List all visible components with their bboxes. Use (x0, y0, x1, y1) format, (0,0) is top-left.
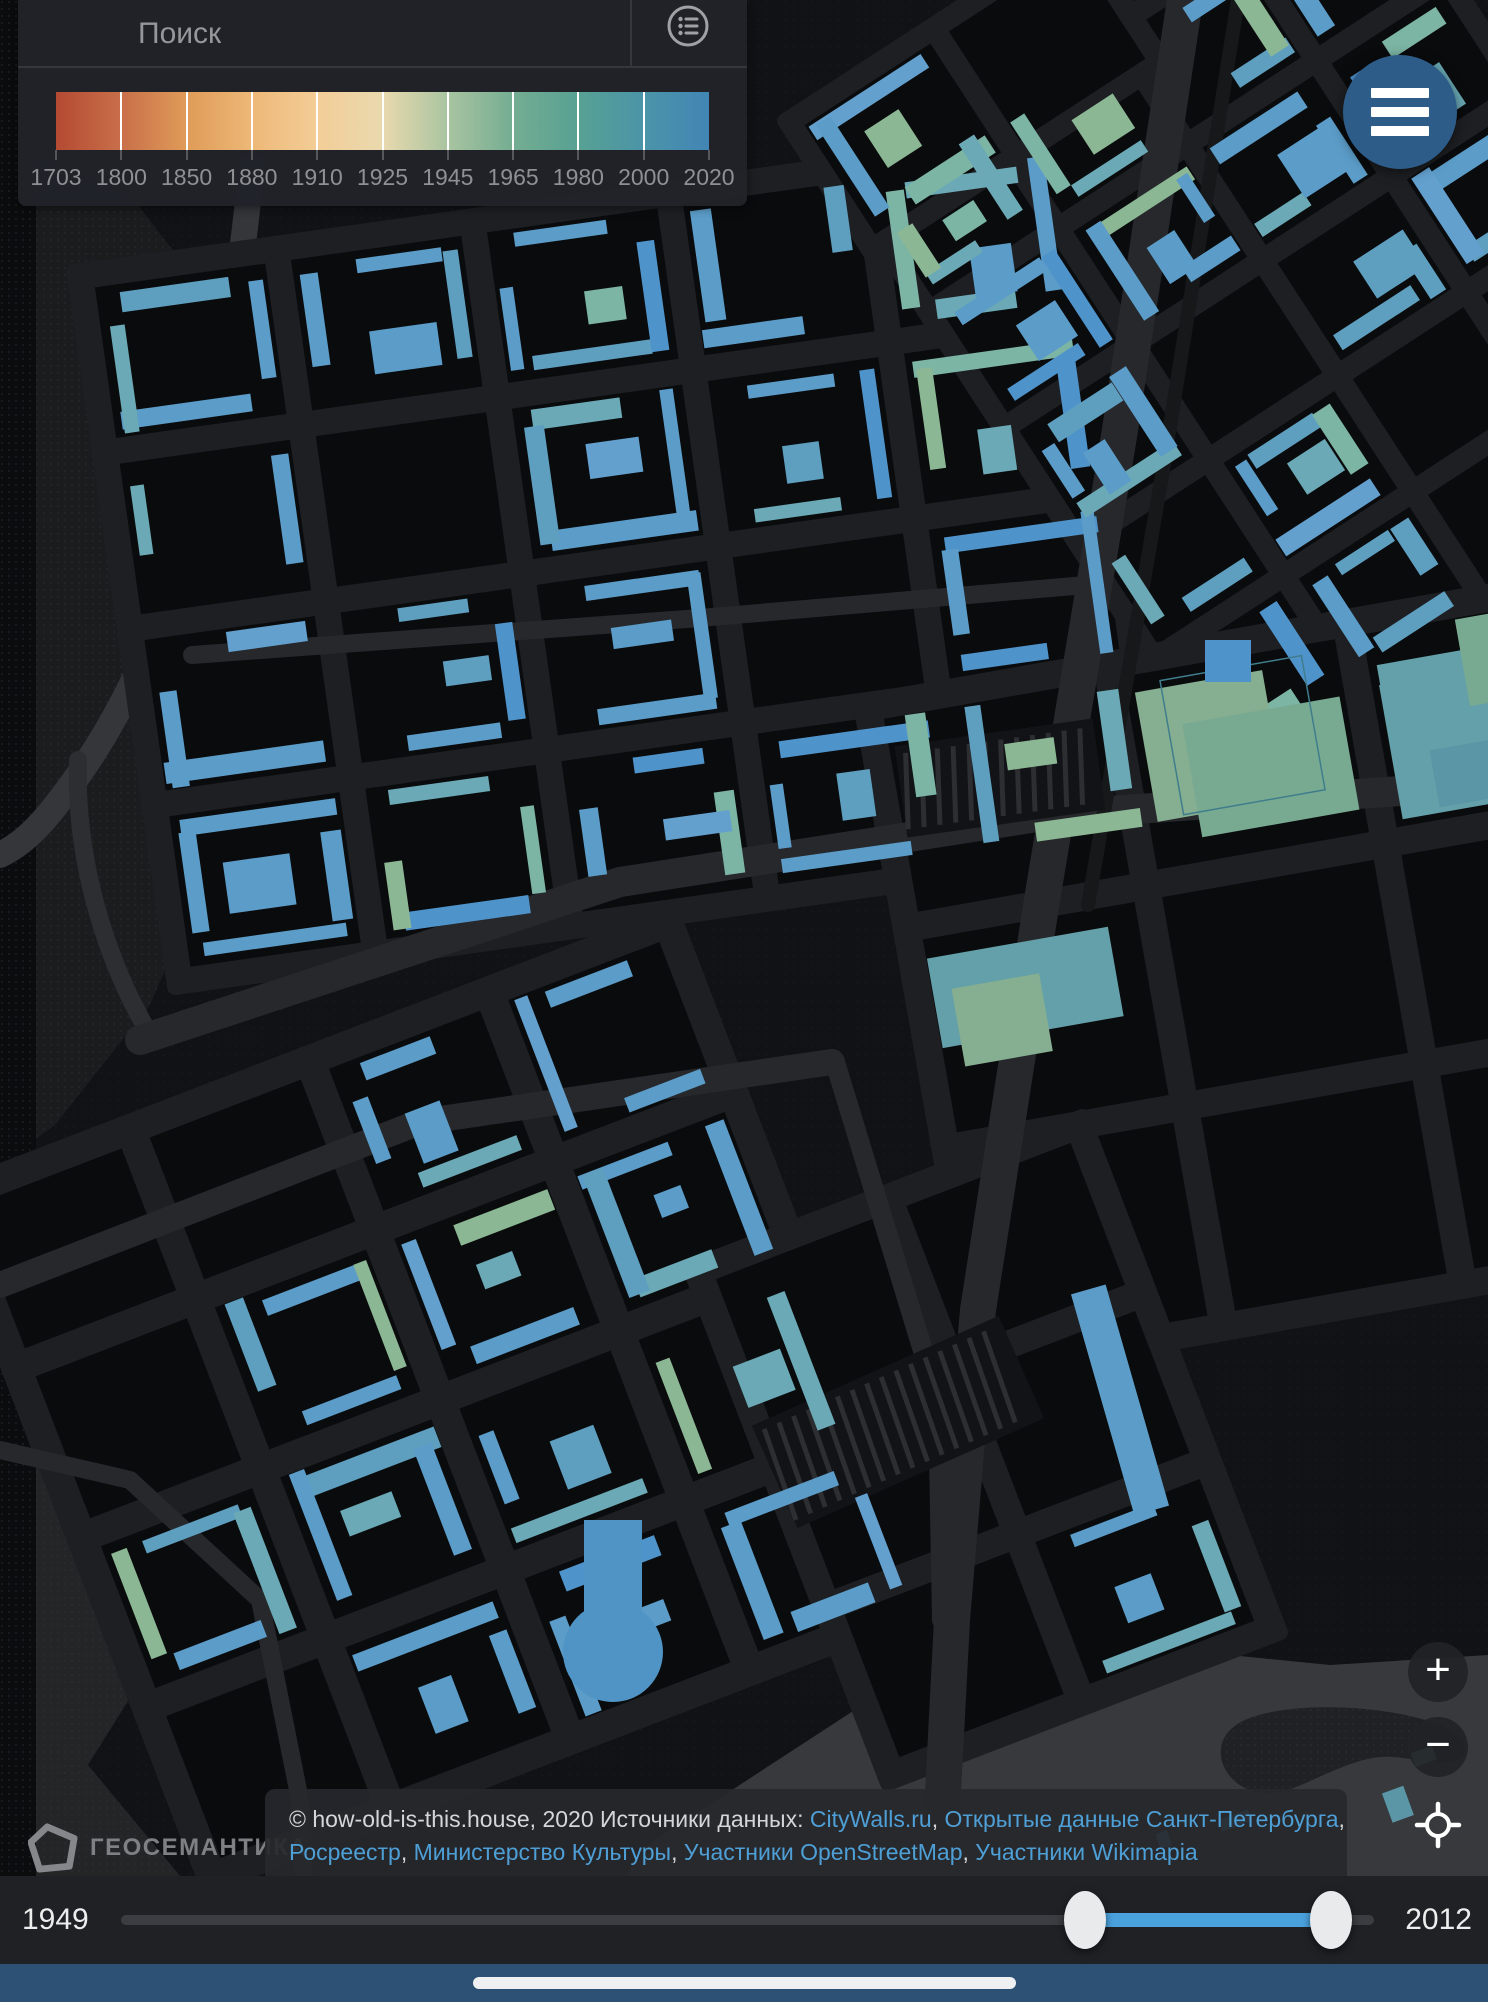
legend-year-label: 2020 (683, 164, 734, 191)
list-icon (664, 2, 712, 50)
attribution-text-segment: © how-old-is-this.house, 2020 Источники … (289, 1806, 810, 1832)
legend-year-label: 1880 (226, 164, 277, 191)
legend-year-label: 1980 (553, 164, 604, 191)
home-indicator-area (0, 1964, 1488, 2002)
timeline-min-label: 1949 (22, 1876, 89, 1964)
legend-year-label: 1945 (422, 164, 473, 191)
legend-year-label: 1965 (488, 164, 539, 191)
attribution-link[interactable]: Участники OpenStreetMap (684, 1839, 963, 1865)
legend-year-label: 1925 (357, 164, 408, 191)
zoom-out-button[interactable]: − (1408, 1717, 1468, 1777)
attribution-text: © how-old-is-this.house, 2020 Источники … (289, 1803, 1323, 1869)
legend-year-label: 1800 (96, 164, 147, 191)
legend-gradient-bar[interactable] (56, 92, 709, 150)
legend-ticks (56, 150, 709, 160)
home-indicator[interactable] (473, 1977, 1016, 1989)
legend-year-label: 1910 (292, 164, 343, 191)
timeline-handle-end[interactable] (1310, 1891, 1352, 1949)
legend-year-label: 2000 (618, 164, 669, 191)
attribution-text-segment: , (962, 1839, 975, 1865)
panel-divider (630, 0, 632, 66)
legend-year-label: 1703 (30, 164, 81, 191)
attribution-text-segment: , (932, 1806, 945, 1832)
year-legend: 1703180018501880191019251945196519802000… (18, 68, 747, 192)
timeline-max-label: 2012 (1405, 1876, 1472, 1964)
timeline-track[interactable] (121, 1915, 1374, 1925)
locate-button[interactable] (1414, 1801, 1462, 1849)
attribution-link[interactable]: Открытые данные Санкт-Петербурга (944, 1806, 1338, 1832)
locate-icon (1414, 1801, 1462, 1849)
timeline-active-range (1085, 1913, 1332, 1927)
attribution-link[interactable]: Министерство Культуры (414, 1839, 671, 1865)
search-input[interactable] (136, 0, 610, 68)
timeline-bar: 1949 2012 (0, 1876, 1488, 1964)
attribution-link[interactable]: CityWalls.ru (810, 1806, 932, 1832)
attribution-box: © how-old-is-this.house, 2020 Источники … (265, 1789, 1347, 1885)
attribution-text-segment: , (401, 1839, 414, 1865)
legend-year-label: 1850 (161, 164, 212, 191)
how-old-is-this-house-app: 1703180018501880191019251945196519802000… (0, 0, 1488, 2002)
attribution-text-segment: , (671, 1839, 684, 1865)
building-list-button[interactable] (664, 2, 712, 50)
menu-button[interactable] (1343, 55, 1457, 169)
zoom-in-button[interactable]: + (1408, 1642, 1468, 1702)
search-panel: 1703180018501880191019251945196519802000… (18, 0, 747, 206)
attribution-link[interactable]: Росреестр (289, 1839, 401, 1865)
timeline-handle-start[interactable] (1064, 1891, 1106, 1949)
search-row (18, 0, 747, 68)
legend-labels: 1703180018501880191019251945196519802000… (56, 162, 709, 192)
pentagon-logo-icon (28, 1823, 78, 1873)
attribution-text-segment: , (1339, 1806, 1345, 1832)
attribution-link[interactable]: Участники Wikimapia (975, 1839, 1197, 1865)
city-map[interactable] (0, 0, 1488, 2002)
